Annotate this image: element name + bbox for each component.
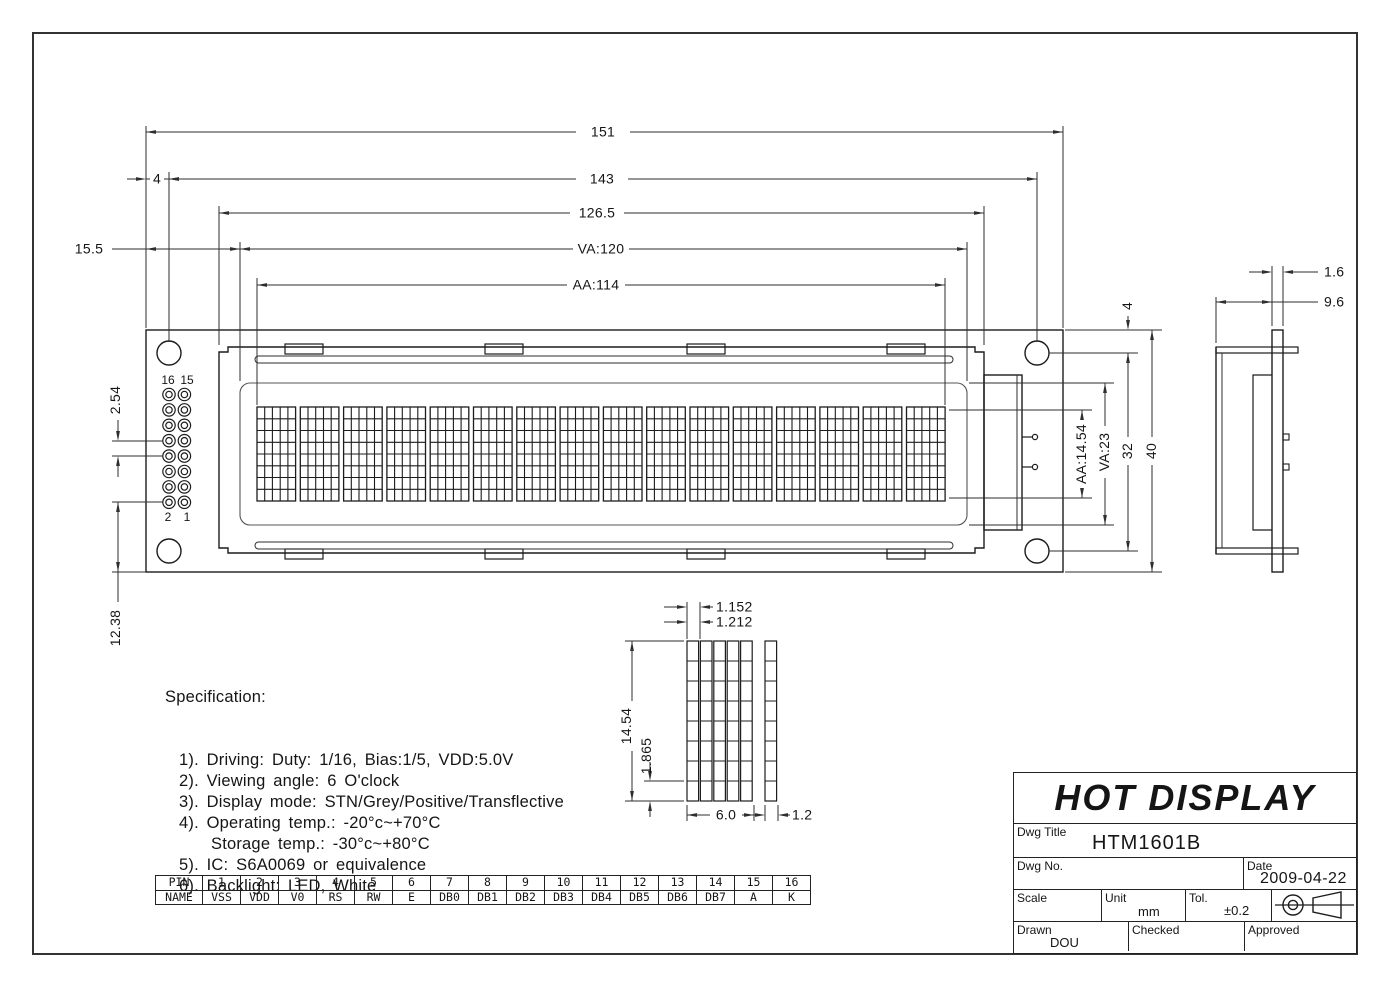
arrowhead — [687, 813, 697, 817]
spec-item: 4). Operating temp.: -20°c~+70°C — [165, 813, 564, 834]
dim-14-54: 14.54 — [618, 708, 634, 745]
arrowhead — [116, 562, 120, 572]
arrowhead — [974, 211, 984, 215]
bezel-tab — [285, 549, 323, 559]
arrowhead — [1262, 300, 1272, 304]
bezel-tab — [485, 549, 523, 559]
pin-table-cell: 3 — [279, 876, 317, 891]
arrowhead — [677, 620, 687, 624]
char-block-grid — [777, 407, 816, 501]
pin-hole — [181, 422, 187, 428]
pin-pad — [178, 404, 190, 416]
pin-table-cell: 9 — [507, 876, 545, 891]
spec-item: 3). Display mode: STN/Grey/Positive/Tran… — [165, 792, 564, 813]
arrowhead — [1283, 270, 1293, 274]
pin-table-header: PIN — [156, 876, 203, 891]
arrowhead — [1126, 353, 1130, 363]
bezel-tab — [285, 344, 323, 354]
spec-item: 2). Viewing angle: 6 O'clock — [165, 771, 564, 792]
pin-table-cell: DB4 — [583, 891, 621, 905]
dim-126-5: 126.5 — [579, 205, 616, 221]
pin-table-cell: 6 — [393, 876, 431, 891]
pin-pad — [163, 450, 175, 462]
dim-4-right: 4 — [1119, 302, 1135, 310]
char-block-grid — [300, 407, 339, 501]
pin-table-cell: K — [773, 891, 810, 905]
character-detail-view — [687, 641, 777, 801]
pin-table-cell: 5 — [355, 876, 393, 891]
dim-va-23: VA:23 — [1096, 433, 1112, 472]
mounting-hole — [157, 539, 181, 563]
char-block-grid — [257, 407, 296, 501]
dim-6-0: 6.0 — [716, 807, 736, 823]
spec-item: 1). Driving: Duty: 1/16, Bias:1/5, VDD:5… — [165, 750, 564, 771]
side-bezel-flange-bottom — [1216, 548, 1298, 554]
pin-hole — [181, 407, 187, 413]
spec-item: Storage temp.: -30°c~+80°C — [165, 834, 564, 855]
char-block-grid — [647, 407, 686, 501]
pin-table-cell: 11 — [583, 876, 621, 891]
backlight-pin-head — [1032, 434, 1037, 439]
arrowhead — [957, 247, 967, 251]
drawing-sheet: 151 143 4 126.5 15.5 VA:120 AA:114 2.54 … — [0, 0, 1400, 990]
pin-hole — [181, 499, 187, 505]
arrowhead — [630, 791, 634, 801]
pin-table-cell: RS — [317, 891, 355, 905]
pin-pad — [178, 419, 190, 431]
pin-table-cell: DB7 — [697, 891, 735, 905]
pin-hole — [166, 484, 172, 490]
dim-1-212: 1.212 — [716, 614, 753, 630]
pin-hole — [166, 468, 172, 474]
arrowhead — [1150, 330, 1154, 340]
pin-table-cell: DB5 — [621, 891, 659, 905]
pin-pad — [163, 435, 175, 447]
dim-15-5: 15.5 — [75, 241, 103, 257]
pin-table-cell: 16 — [773, 876, 810, 891]
dwg-title-value: HTM1601B — [1092, 832, 1201, 855]
dim-2-54: 2.54 — [107, 386, 123, 414]
mounting-hole — [1025, 539, 1049, 563]
side-glass — [1253, 375, 1272, 530]
char-block-grid — [474, 407, 513, 501]
pin-hole — [166, 391, 172, 397]
checked-label: Checked — [1132, 923, 1179, 937]
char-block-grid — [387, 407, 426, 501]
pin-hole — [166, 453, 172, 459]
scale-row: Scale Unit mm Tol. ±0.2 — [1014, 890, 1356, 922]
side-view — [1216, 330, 1298, 572]
char-block-grid — [517, 407, 556, 501]
pin-pad — [178, 450, 190, 462]
pin-hole — [166, 407, 172, 413]
bezel-slot — [255, 356, 953, 363]
pin-table-cell: 2 — [241, 876, 279, 891]
checked-cell: Checked — [1128, 922, 1244, 951]
dwg-no-label: Dwg No. — [1017, 859, 1063, 873]
pin-hole — [181, 453, 187, 459]
dim-aa114: AA:114 — [573, 277, 620, 293]
side-pin — [1283, 434, 1289, 440]
char-block-grid — [820, 407, 859, 501]
side-pcb — [1272, 330, 1283, 572]
dim-1-865: 1.865 — [638, 738, 654, 775]
date-cell: Date 2009-04-22 — [1243, 858, 1356, 889]
side-pin — [1283, 464, 1289, 470]
pin-table-cell: A — [735, 891, 773, 905]
arrowhead — [230, 247, 240, 251]
unit-label: Unit — [1105, 891, 1126, 905]
side-bezel-flange-top — [1216, 347, 1298, 353]
date-value: 2009-04-22 — [1260, 870, 1347, 888]
arrowhead — [677, 605, 687, 609]
pin-table-cell: DB3 — [545, 891, 583, 905]
arrowhead — [648, 801, 652, 811]
arrowhead — [146, 247, 156, 251]
arrowhead — [136, 177, 146, 181]
projection-symbol-cell — [1271, 890, 1356, 921]
pin-label-1: 1 — [184, 510, 191, 524]
arrowhead — [1080, 410, 1084, 420]
dwg-title-row: Dwg Title HTM1601B — [1014, 824, 1356, 858]
arrowhead — [1103, 383, 1107, 393]
arrowhead — [1126, 541, 1130, 551]
pcb-outline — [146, 330, 1063, 572]
pin-table-cell: DB2 — [507, 891, 545, 905]
pin-pad — [178, 435, 190, 447]
arrowhead — [744, 813, 754, 817]
dim-1-2: 1.2 — [792, 807, 812, 823]
dim-1-152: 1.152 — [716, 599, 753, 615]
drawn-value: DOU — [1050, 935, 1079, 950]
pin-hole — [181, 468, 187, 474]
pin-pad — [163, 419, 175, 431]
pin-pad — [163, 388, 175, 400]
arrowhead — [116, 502, 120, 512]
pin-table-cell: DB1 — [469, 891, 507, 905]
dim-32: 32 — [1119, 443, 1135, 459]
pin-table-cell: 10 — [545, 876, 583, 891]
dim-1-6: 1.6 — [1324, 264, 1344, 280]
char-block-grid — [690, 407, 729, 501]
title-block: HOT DISPLAY Dwg Title HTM1601B Dwg No. D… — [1013, 772, 1357, 954]
arrowhead — [116, 431, 120, 441]
pin-pad — [163, 496, 175, 508]
arrowhead — [1027, 177, 1037, 181]
bezel-tab — [485, 344, 523, 354]
pin-table-cell: 4 — [317, 876, 355, 891]
dim-40: 40 — [1143, 443, 1159, 459]
pin-table-cell: 13 — [659, 876, 697, 891]
arrowhead — [1080, 488, 1084, 498]
pin-label-15: 15 — [180, 373, 194, 387]
pin-table-header: NAME — [156, 891, 203, 905]
spec-item: 5). IC: S6A0069 or equivalence — [165, 855, 564, 876]
pin-label-2: 2 — [165, 510, 172, 524]
front-view — [146, 330, 1063, 572]
pin-hole — [166, 438, 172, 444]
pin-hole — [181, 438, 187, 444]
arrowhead — [700, 605, 710, 609]
arrowhead — [1150, 562, 1154, 572]
char-block-grid — [560, 407, 599, 501]
dim-aa-14-54: AA:14.54 — [1073, 424, 1089, 484]
dim-143: 143 — [590, 171, 614, 187]
dim-va120: VA:120 — [578, 241, 625, 257]
pin-table-cell: RW — [355, 891, 393, 905]
bezel-outline — [219, 347, 984, 553]
char-block-grid — [430, 407, 469, 501]
pin-label-16: 16 — [161, 373, 175, 387]
pin-hole — [166, 422, 172, 428]
dim-9-6: 9.6 — [1324, 294, 1344, 310]
tol-label: Tol. — [1189, 891, 1208, 905]
pin-assignment-table: PIN12345678910111213141516NAMEVSSVDDV0RS… — [155, 875, 811, 905]
char-block-grid — [863, 407, 902, 501]
pin-table-cell: E — [393, 891, 431, 905]
dim-12-38: 12.38 — [107, 610, 123, 647]
mounting-hole — [1025, 341, 1049, 365]
pin-table-cell: 15 — [735, 876, 773, 891]
pin-pad — [178, 496, 190, 508]
pin-table-cell: VDD — [241, 891, 279, 905]
tol-cell: Tol. ±0.2 — [1185, 890, 1271, 921]
pin-table-cell: 7 — [431, 876, 469, 891]
pin-table-cell: 8 — [469, 876, 507, 891]
pin-pad — [163, 481, 175, 493]
backlight-pin-head — [1032, 464, 1037, 469]
pin-table-cell: V0 — [279, 891, 317, 905]
arrowhead — [257, 283, 267, 287]
dwg-no-row: Dwg No. Date 2009-04-22 — [1014, 858, 1356, 890]
char-block-grid — [733, 407, 772, 501]
pin-hole — [166, 499, 172, 505]
pin-table-cell: 1 — [203, 876, 241, 891]
bezel-tab — [687, 549, 725, 559]
arrowhead — [778, 813, 788, 817]
arrowhead — [116, 456, 120, 466]
arrowhead — [1126, 320, 1130, 330]
arrowhead — [1053, 130, 1063, 134]
pin-table-cell: DB6 — [659, 891, 697, 905]
bezel-tab — [687, 344, 725, 354]
arrowhead — [1103, 515, 1107, 525]
pin-table-cell: 14 — [697, 876, 735, 891]
drawn-label: Drawn — [1017, 923, 1052, 937]
pin-hole — [181, 484, 187, 490]
dim-4-left: 4 — [153, 171, 161, 187]
arrowhead — [169, 177, 179, 181]
char-block-grid — [907, 407, 946, 501]
pin-table-cell: DB0 — [431, 891, 469, 905]
third-angle-projection-icon — [1272, 890, 1357, 920]
bezel-tab — [887, 549, 925, 559]
arrowhead — [1262, 270, 1272, 274]
pin-pad — [178, 465, 190, 477]
dwg-title-label: Dwg Title — [1017, 825, 1066, 839]
bezel-tab — [887, 344, 925, 354]
mounting-hole — [157, 341, 181, 365]
unit-value: mm — [1138, 904, 1160, 919]
bezel-slot — [255, 542, 953, 549]
pin-table-cell: 12 — [621, 876, 659, 891]
signature-row: Drawn DOU Checked Approved — [1014, 922, 1356, 951]
approved-cell: Approved — [1244, 922, 1356, 951]
unit-cell: Unit mm — [1101, 890, 1185, 921]
dim-151: 151 — [591, 124, 615, 140]
spec-title: Specification: — [165, 687, 564, 708]
tol-value: ±0.2 — [1224, 903, 1249, 918]
arrowhead — [700, 620, 710, 624]
arrowhead — [146, 130, 156, 134]
arrowhead — [755, 813, 765, 817]
arrowhead — [219, 211, 229, 215]
pin-hole — [181, 391, 187, 397]
arrowhead — [935, 283, 945, 287]
pin-pad — [178, 388, 190, 400]
backlight-connector — [984, 375, 1022, 530]
arrowhead — [630, 641, 634, 651]
char-block-grid — [344, 407, 383, 501]
pin-table-cell: VSS — [203, 891, 241, 905]
pin-pad — [178, 481, 190, 493]
company-name: HOT DISPLAY — [1014, 773, 1356, 824]
arrowhead — [1216, 300, 1226, 304]
approved-label: Approved — [1248, 923, 1299, 937]
char-block-grid — [603, 407, 642, 501]
arrowhead — [240, 247, 250, 251]
pin-pad — [163, 404, 175, 416]
scale-label: Scale — [1017, 891, 1047, 905]
pin-pad — [163, 465, 175, 477]
